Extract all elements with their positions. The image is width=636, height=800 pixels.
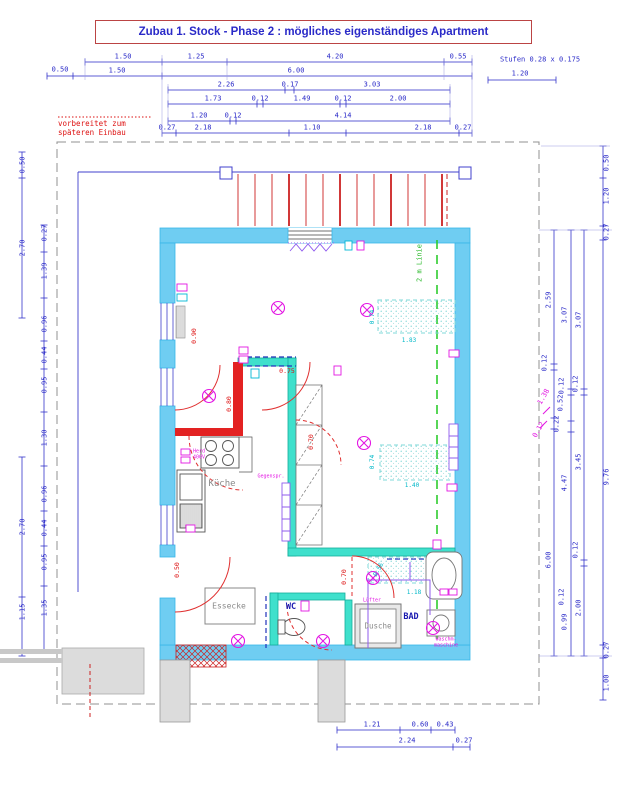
dim-label: 0.12 xyxy=(542,355,549,372)
two-m-line-label: 2 m Linie xyxy=(417,244,424,282)
symbol-box-icon xyxy=(181,457,190,463)
dim-label: 0.95 xyxy=(42,377,49,394)
dim-label: 4.14 xyxy=(335,113,352,120)
symbol-box-icon xyxy=(177,294,187,301)
dim-label: 0.12 xyxy=(559,589,566,606)
dim-label: 0.12 xyxy=(252,96,269,103)
symbol-box-icon xyxy=(433,540,441,549)
room-label-wc: WC xyxy=(286,602,296,612)
dim-label: 0.27 xyxy=(455,125,472,132)
page-title: Zubau 1. Stock - Phase 2 : mögliches eig… xyxy=(139,26,489,38)
wardrobe-icon xyxy=(296,385,322,545)
dim-label: 1.20 xyxy=(604,188,611,205)
dim-label: 6.00 xyxy=(546,552,553,569)
dim-label: 0.80 xyxy=(226,396,233,412)
dim-label: 0.50 xyxy=(174,562,181,578)
dim-label: 1.20 xyxy=(191,113,208,120)
dim-label: 0.44 xyxy=(42,520,49,537)
symbol-box-icon xyxy=(449,350,459,357)
dim-label: 1.10 xyxy=(304,125,321,132)
dim-label: 0.90 xyxy=(191,328,198,344)
dim-label: 0.12 xyxy=(225,113,242,120)
post-icon xyxy=(459,167,471,179)
dim-label: 1.30 xyxy=(42,430,49,447)
pillar-icon xyxy=(318,660,345,722)
symbol-box-icon xyxy=(251,369,259,378)
dim-label: 0.43 xyxy=(437,722,454,729)
dim-label: 0.95 xyxy=(42,554,49,571)
dim-label: 0.27 xyxy=(456,738,473,745)
dim-label: 0.12 xyxy=(573,542,580,559)
dim-label: 0.12 xyxy=(335,96,352,103)
ceiling-light-icon xyxy=(203,390,216,403)
dim-label: 0.27 xyxy=(159,125,176,132)
dim-label: 0.74 xyxy=(370,310,376,324)
dim-label: 0.12 xyxy=(573,376,580,393)
dim-label: 0.52 xyxy=(558,395,565,412)
dim-label: 2.00 xyxy=(390,96,407,103)
dim-label: 2.24 xyxy=(399,738,416,745)
room-label-shower: Dusche xyxy=(364,622,391,631)
symbol-box-icon xyxy=(334,366,341,375)
new-walls-red xyxy=(175,362,243,436)
dim-label: 9.76 xyxy=(604,469,611,486)
dim-label: 2.70 xyxy=(20,519,27,536)
door-arc xyxy=(175,365,220,410)
prepared-note: vorbereitet zum späteren Einbau xyxy=(58,119,126,138)
shutter-icon xyxy=(176,306,185,338)
dim-label: 1.20 xyxy=(512,71,529,78)
dim-label: 0.96 xyxy=(42,316,49,333)
dim-label: 1.25 xyxy=(188,54,205,61)
dim-label: 1.73 xyxy=(205,96,222,103)
dim-label: 2.59 xyxy=(546,292,553,309)
dim-label: 6.00 xyxy=(288,68,305,75)
symbol-box-icon xyxy=(239,356,248,363)
symbol-box-icon xyxy=(239,347,248,354)
dim-label: 0.75 xyxy=(279,368,295,375)
ceiling-light-icon xyxy=(272,302,285,315)
pillar-icon xyxy=(160,660,190,722)
toilet-icon xyxy=(278,619,305,636)
dim-label: 0.27 xyxy=(604,224,611,241)
interior-partitions xyxy=(238,358,455,645)
symbol-box-icon xyxy=(186,525,195,532)
heater-zigzag-icon xyxy=(288,243,334,251)
dim-label: 0.50 xyxy=(52,67,69,74)
floorplan-page: Zubau 1. Stock - Phase 2 : mögliches eig… xyxy=(0,0,636,800)
dim-label: 0.17 xyxy=(282,82,299,89)
intercom-label: Gegenspr. xyxy=(257,475,284,480)
dim-label: 1.35 xyxy=(42,600,49,617)
dim-label: 1.50 xyxy=(115,54,132,61)
dim-label: 0.60 xyxy=(412,722,429,729)
dim-label: 1.50 xyxy=(109,68,126,75)
dim-label: 2.00 xyxy=(576,600,583,617)
ceiling-light-icon xyxy=(358,437,371,450)
sink-unit-icon xyxy=(177,470,205,532)
washing-machine-icon xyxy=(427,610,455,636)
dim-label: 3.03 xyxy=(364,82,381,89)
dim-label: 2.18 xyxy=(195,125,212,132)
dim-label: 0.50 xyxy=(604,155,611,172)
dim-label: 0.27 xyxy=(604,642,611,659)
fan-label: Lüfter xyxy=(363,599,381,604)
dim-label: 0.22 xyxy=(554,416,561,433)
dim-label: 0.70 xyxy=(308,434,315,450)
dim-label: 0.96 xyxy=(42,486,49,503)
room-label-bath: BAD xyxy=(403,612,418,622)
dim-label: 0.27 xyxy=(42,225,49,242)
post-icon xyxy=(220,167,232,179)
dim-label: 3.45 xyxy=(576,454,583,471)
title-box: Zubau 1. Stock - Phase 2 : mögliches eig… xyxy=(95,20,532,44)
room-label-dining: Essecke xyxy=(212,602,246,611)
top-window-icon xyxy=(288,228,332,243)
dim-label: 0.12 xyxy=(559,378,566,395)
dim-label: 0.70 xyxy=(341,569,348,585)
symbol-box-icon xyxy=(447,484,457,491)
stairs-note: Stufen 0.28 x 0.175 xyxy=(500,57,580,64)
dim-label: 0.99 xyxy=(562,614,569,631)
dim-label: 4.20 xyxy=(327,54,344,61)
symbol-box-icon xyxy=(440,589,448,595)
dim-label: 0.50 xyxy=(20,157,27,174)
dim-label: 0.74 xyxy=(370,455,376,469)
dim-label: 1.49 xyxy=(294,96,311,103)
stove-power-label: 400V xyxy=(193,456,205,461)
symbol-box-icon xyxy=(177,284,187,291)
dim-label: 1.18 xyxy=(407,590,421,596)
dim-label: 3.07 xyxy=(562,307,569,324)
dim-label: 1.39 xyxy=(42,263,49,280)
dim-label: 0.55 xyxy=(450,54,467,61)
symbol-box-icon xyxy=(357,241,364,250)
symbol-box-icon xyxy=(449,589,457,595)
symbol-box-icon xyxy=(301,601,309,611)
dim-label: 2.26 xyxy=(218,82,235,89)
stove-icon xyxy=(201,437,252,472)
dim-label: 2.70 xyxy=(20,240,27,257)
symbol-box-icon xyxy=(181,449,190,455)
dim-label: 1.83 xyxy=(402,338,416,344)
dim-label: 1.00 xyxy=(604,675,611,692)
dim-label: 1.21 xyxy=(364,722,381,729)
dim-label: 0.44 xyxy=(42,347,49,364)
dim-label: 1.40 xyxy=(405,483,419,489)
dim-label: 3.07 xyxy=(576,312,583,329)
dim-label: 1.15 xyxy=(20,604,27,621)
dim-label: 2.18 xyxy=(415,125,432,132)
dim-label: 4.47 xyxy=(562,475,569,492)
washer-label: maschine xyxy=(434,644,458,649)
room-label-kitchen: Küche xyxy=(208,479,235,489)
symbol-box-icon xyxy=(345,241,352,250)
